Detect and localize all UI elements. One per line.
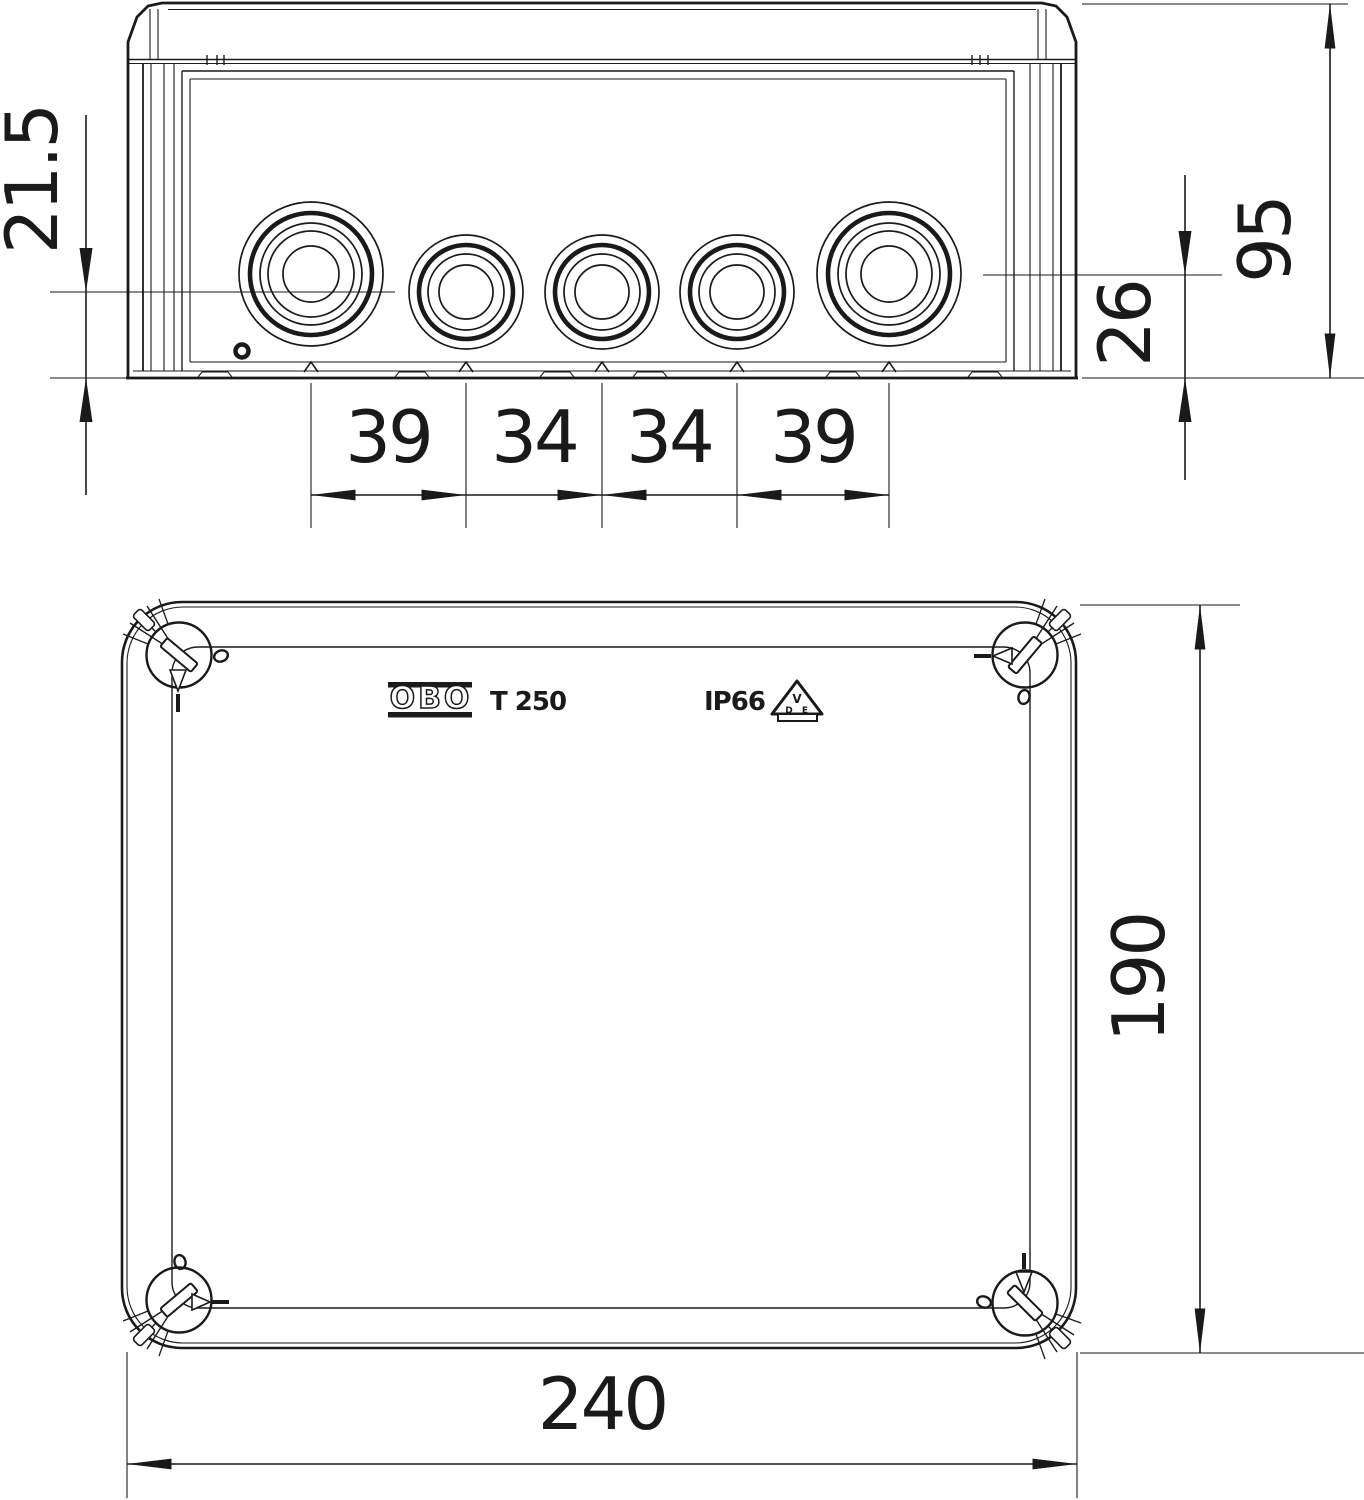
cable-entry-small-1 (409, 235, 523, 349)
cable-entry-large-2 (817, 202, 961, 346)
cable-entry-large-1 (239, 202, 383, 346)
screw-slot (1008, 636, 1042, 674)
dim-label-39-left: 39 (345, 395, 431, 479)
dim-label-34-right: 34 (626, 395, 712, 479)
dim-label-26: 26 (1083, 281, 1167, 367)
lid-markings: OBO T 250 IP66 V D E (388, 681, 822, 721)
corner-screw-top-left (123, 599, 229, 712)
drawing-page: 21.5 95 26 39 34 (0, 0, 1364, 1500)
dimension-length: 190 (1080, 605, 1364, 1353)
vde-letter-e: E (802, 706, 808, 716)
technical-drawing: 21.5 95 26 39 34 (0, 0, 1364, 1500)
dimension-entry-spacing: 39 34 34 39 (311, 383, 889, 528)
dimension-width: 240 (127, 1352, 1077, 1498)
o-marker (213, 648, 230, 663)
o-marker (1017, 689, 1031, 705)
vde-letter-d: D (785, 706, 792, 716)
side-view-lid (128, 3, 1076, 65)
lid-outline (122, 602, 1076, 1348)
model-label: T 250 (490, 687, 566, 717)
position-triangle (993, 648, 1012, 664)
obo-logo-text: OBO (390, 681, 473, 716)
corner-screw-top-right (974, 599, 1081, 705)
bottom-edge-notches (198, 372, 1002, 377)
cable-entry-small-2 (545, 235, 659, 349)
vde-letter-v: V (792, 692, 802, 706)
dimension-entry-center-large: 26 (983, 175, 1222, 480)
dimension-entry-center-small: 21.5 (0, 106, 395, 495)
dim-label-34-left: 34 (491, 395, 577, 479)
dim-label-240: 240 (538, 1362, 666, 1446)
dim-label-39-right: 39 (770, 395, 856, 479)
ip-rating-label: IP66 (704, 687, 765, 717)
side-view: 21.5 95 26 39 34 (0, 3, 1364, 528)
vent-hole-marker (236, 345, 249, 358)
dim-label-95: 95 (1223, 197, 1307, 283)
cable-entry-small-3 (680, 235, 794, 349)
o-marker (976, 1294, 993, 1309)
vde-mark: V D E (772, 681, 822, 721)
corner-screw-bottom-left (123, 1254, 229, 1356)
obo-logo: OBO (388, 681, 472, 718)
dim-label-21-5: 21.5 (0, 106, 74, 254)
bottom-view: OBO T 250 IP66 V D E 240 190 (122, 599, 1364, 1498)
lid-inner-panel (172, 647, 1030, 1308)
dim-label-190: 190 (1097, 914, 1181, 1042)
